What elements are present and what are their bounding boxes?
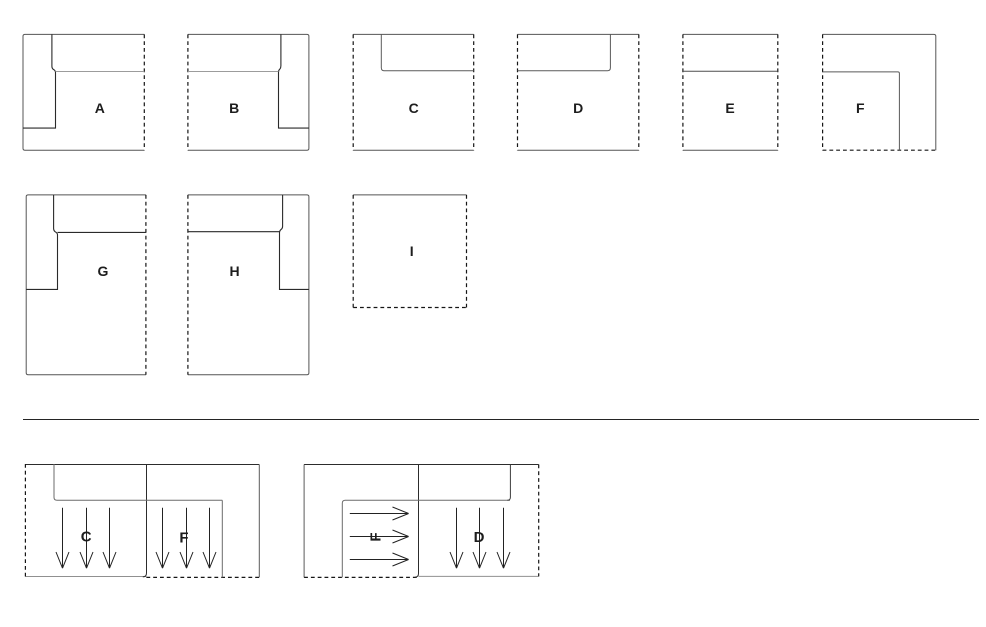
svg-text:C: C	[409, 100, 419, 116]
svg-text:E: E	[725, 100, 734, 116]
svg-text:H: H	[229, 263, 239, 279]
svg-text:F: F	[368, 532, 385, 541]
svg-text:D: D	[474, 529, 485, 546]
svg-text:I: I	[410, 243, 414, 259]
svg-text:F: F	[856, 100, 865, 116]
svg-text:D: D	[573, 100, 583, 116]
svg-text:A: A	[95, 100, 105, 116]
svg-text:B: B	[229, 100, 239, 116]
svg-text:F: F	[179, 529, 188, 546]
svg-text:G: G	[97, 263, 108, 279]
svg-text:C: C	[81, 528, 92, 545]
